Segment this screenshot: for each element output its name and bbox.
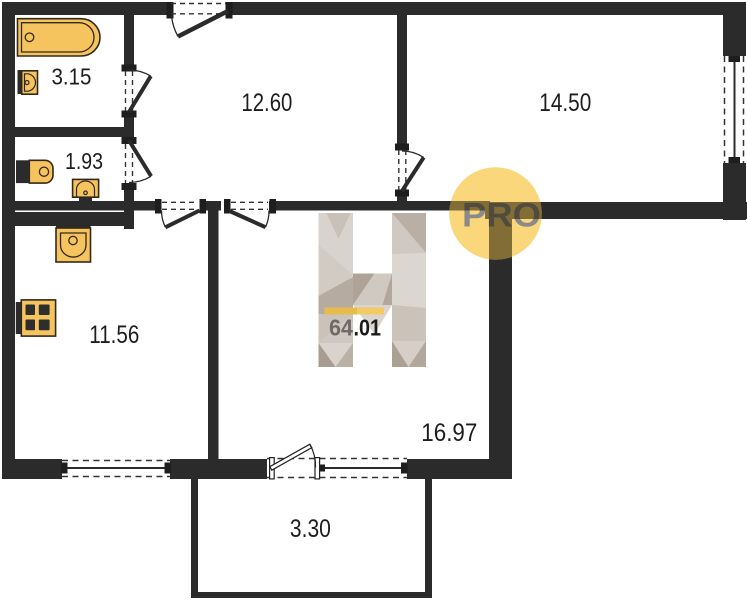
svg-text:14.50: 14.50 [539, 89, 591, 117]
svg-text:11.56: 11.56 [89, 321, 139, 349]
svg-text:3.30: 3.30 [290, 515, 331, 543]
svg-text:1.93: 1.93 [65, 148, 103, 174]
svg-text:3.15: 3.15 [52, 64, 92, 90]
svg-text:12.60: 12.60 [241, 89, 292, 117]
svg-text:.01: .01 [354, 315, 382, 341]
svg-text:16.97: 16.97 [421, 419, 477, 447]
svg-text:64: 64 [329, 315, 353, 341]
